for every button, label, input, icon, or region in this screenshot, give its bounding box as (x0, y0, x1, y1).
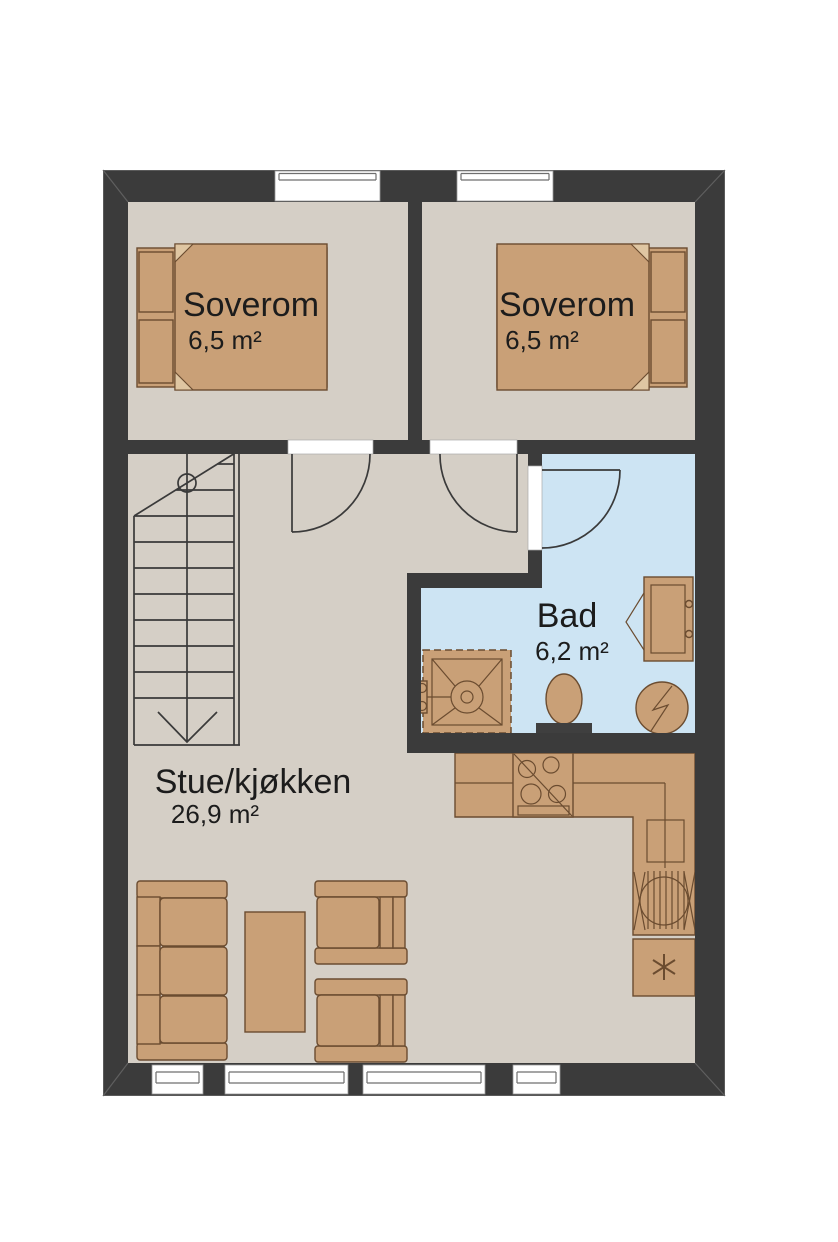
living-room-area: 26,9 m² (171, 799, 259, 829)
bed-2-pillow (651, 252, 685, 312)
bathroom-wall-bottom (407, 733, 695, 753)
fridge-icon (633, 939, 695, 996)
window-bottom-3 (363, 1065, 485, 1094)
window-bottom-4 (513, 1065, 560, 1094)
armchair-2-icon (315, 979, 407, 1062)
window-top-left (275, 171, 380, 201)
bedroom-1-label: Soverom (183, 286, 319, 324)
bathroom-wall-lower-left (407, 588, 421, 733)
stove-icon (513, 753, 573, 817)
window-bottom-2 (225, 1065, 348, 1094)
floor-plan-drawing: Soverom 6,5 m² Soverom 6,5 m² Bad 6,2 m²… (0, 0, 838, 1242)
washing-machine-icon (636, 682, 688, 734)
bedroom-1-area: 6,5 m² (188, 325, 262, 355)
bedroom-2-label: Soverom (499, 286, 635, 324)
shower-icon (417, 650, 511, 733)
bathroom-label: Bad (537, 597, 598, 635)
armchair-1-icon (315, 881, 407, 964)
bathroom-area: 6,2 m² (535, 636, 609, 666)
bedroom-1-door-opening (288, 440, 373, 454)
bed-1-pillow (139, 320, 173, 383)
sofa-icon (137, 881, 227, 1060)
bedroom-2-door-opening (430, 440, 517, 454)
floor-plan: Soverom 6,5 m² Soverom 6,5 m² Bad 6,2 m²… (0, 0, 838, 1242)
bed-2-pillow (651, 320, 685, 383)
bedroom-2-area: 6,5 m² (505, 325, 579, 355)
bathroom-wall-jut (407, 573, 542, 588)
bathroom-door-opening (528, 466, 542, 550)
living-room-label: Stue/kjøkken (155, 763, 352, 801)
bed-1-pillow (139, 252, 173, 312)
wall-between-bedrooms (408, 202, 422, 440)
coffee-table-icon (245, 912, 305, 1032)
window-bottom-1 (152, 1065, 203, 1094)
window-top-right (457, 171, 553, 201)
